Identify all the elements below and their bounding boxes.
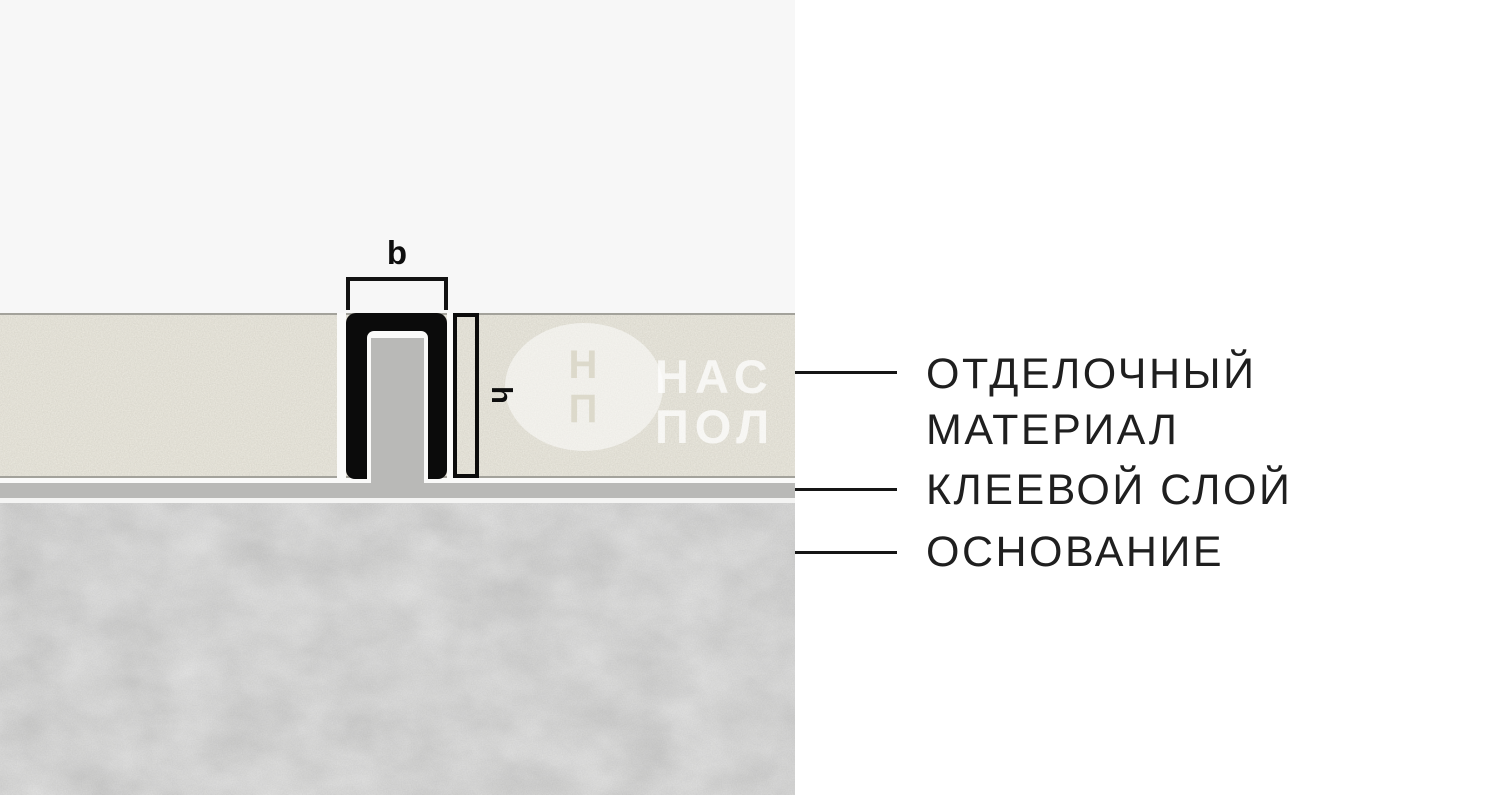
label-finishing-material-line1: ОТДЕЛОЧНЫЙ: [926, 346, 1257, 402]
base-layer: [0, 503, 795, 795]
leader-line-finishing-material: [795, 371, 897, 374]
label-adhesive: КЛЕЕВОЙ СЛОЙ: [926, 462, 1292, 518]
width-dimension-tick-left: [346, 277, 350, 310]
diagram-canvas: Н П НАС ПОЛ: [0, 0, 1500, 795]
base-concrete-texture: [0, 503, 795, 795]
leader-line-adhesive: [795, 488, 897, 491]
height-dimension-bracket: [453, 313, 479, 478]
width-dimension-tick-right: [444, 277, 448, 310]
label-base: ОСНОВАНИЕ: [926, 524, 1224, 580]
expansion-gap-left: [337, 313, 346, 478]
width-dimension-label: b: [346, 234, 448, 272]
height-dimension-label: h: [486, 380, 516, 410]
joint-filler: [371, 338, 424, 498]
leader-line-base: [795, 551, 897, 554]
label-finishing-material-line2: МАТЕРИАЛ: [926, 402, 1257, 458]
width-dimension-bracket: [346, 277, 448, 281]
label-finishing-material: ОТДЕЛОЧНЫЙ МАТЕРИАЛ: [926, 346, 1257, 458]
section-view: Н П НАС ПОЛ: [0, 0, 795, 795]
